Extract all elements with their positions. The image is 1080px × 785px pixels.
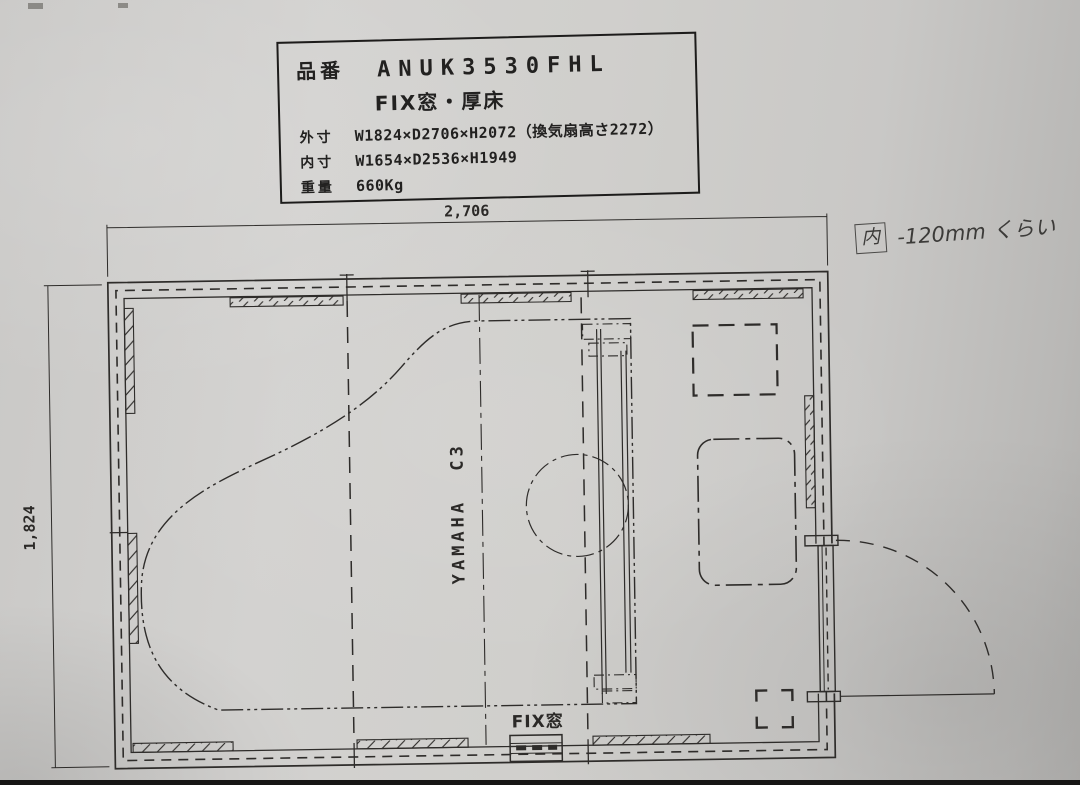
photo-bottom-edge — [0, 780, 1080, 785]
piano-outline — [137, 319, 636, 712]
piano-fallboard — [597, 329, 607, 694]
dim-top-label: 2,706 — [444, 202, 489, 221]
window-label: FIX窓 — [512, 711, 564, 733]
dim-left-label: 1,824 — [20, 505, 39, 550]
room-walls — [108, 271, 836, 768]
door-stop-top — [805, 535, 838, 546]
tilted-drawing: 品番 ANUK3530FHL FIX窓・厚床 外寸 W1824×D2706×H2… — [0, 0, 1080, 785]
grand-piano — [137, 319, 636, 712]
floor-plan: 2,706 1,824 YAMAHA C3 FIX窓 — [0, 0, 1080, 785]
center-line — [479, 295, 486, 745]
floor-marker-brackets — [756, 690, 793, 728]
dim-line-top — [107, 213, 828, 276]
piano-stool — [526, 454, 630, 558]
piano-keyslip — [621, 351, 631, 673]
bench-outline — [697, 438, 796, 586]
piano-label: YAMAHA C3 — [447, 442, 469, 584]
dashed-cabinet — [693, 324, 778, 395]
fix-window — [510, 735, 562, 762]
handwritten-note-prefix: 内 — [854, 222, 887, 254]
entry-door — [805, 533, 995, 702]
drawing-photo: 品番 ANUK3530FHL FIX窓・厚床 外寸 W1824×D2706×H2… — [0, 0, 1080, 785]
door-swing-arc — [836, 538, 994, 696]
door-open-leaf — [840, 694, 994, 696]
dim-line-left — [44, 285, 110, 768]
door-stop-bottom — [807, 691, 840, 702]
furniture — [693, 324, 799, 729]
wall-panel-joints — [124, 289, 819, 753]
